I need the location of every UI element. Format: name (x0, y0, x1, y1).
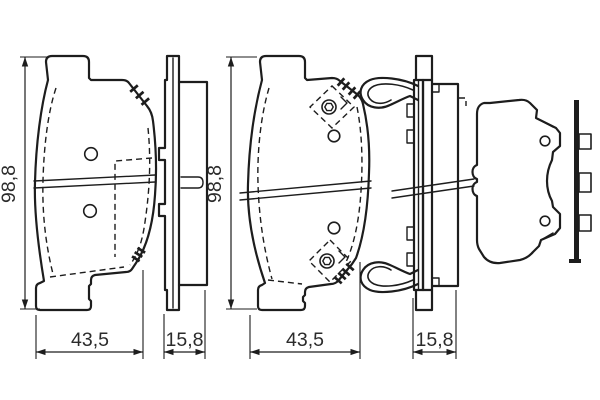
carrier-plate-tab-2 (579, 173, 591, 192)
pad1-rivet-hole-top (85, 148, 98, 161)
carrier-plate-foot (569, 259, 581, 263)
dim-arrow (134, 349, 144, 355)
pad1-break-line-1 (34, 175, 155, 181)
pad2-side-bottom-tab (416, 290, 432, 310)
pad1-contact-stripes-top (130, 85, 149, 105)
pad2-friction-hidden-line-right (346, 107, 362, 262)
pad2-break-line-1 (240, 181, 371, 193)
pad2-side-hidden-corner (459, 98, 466, 106)
dim-pad2-thickness-label: 15,8 (416, 329, 454, 351)
pad2-side-view (361, 56, 474, 310)
carrier-plate-tab-3 (579, 215, 591, 231)
pad3-hole-top (540, 136, 550, 146)
dim-pad2-thickness: 15,8 (413, 290, 456, 359)
dim-arrow (250, 349, 260, 355)
dim-arrow (22, 57, 28, 67)
pad1-friction-hidden-line-bottom (50, 267, 124, 277)
drawing-svg: 98,8 98,8 43,5 15,8 43,5 (0, 0, 600, 400)
pad1-friction-hidden-line-right (130, 128, 150, 265)
pad2-friction-hidden-line-left (258, 88, 272, 279)
dim-arrow (228, 57, 234, 67)
pad3-hole-bottom (540, 216, 550, 226)
dim-pad2-width-label: 43,5 (286, 329, 324, 351)
pad1-side-view (159, 56, 207, 310)
carrier-plate-tab-1 (579, 134, 591, 149)
dim-arrow (228, 300, 234, 310)
pad2-front-view (240, 56, 371, 310)
wear-indicator-clip-bottom (361, 262, 418, 292)
pad2-hole-bottom (328, 222, 340, 234)
dim-pad1-width-label: 43,5 (71, 329, 109, 351)
pad1-break-line-2 (34, 182, 155, 188)
wear-indicator-clip-top (361, 78, 418, 108)
dim-pad1-width: 43,5 (36, 270, 143, 359)
pad2-friction-hidden-line-bottom (268, 280, 302, 284)
pad1-front-view (34, 56, 156, 310)
pad3-tab-line-top (536, 118, 553, 127)
carrier-plate-edge-view (569, 100, 591, 263)
dim-pad1-height-label: 98,8 (0, 165, 20, 203)
dim-arrow (36, 349, 46, 355)
pad2-hole-top (328, 130, 340, 142)
dim-arrow (22, 300, 28, 310)
pad1-contact-stripes-bottom (132, 248, 145, 261)
dim-arrow (351, 349, 361, 355)
brake-pad-technical-drawing: 98,8 98,8 43,5 15,8 43,5 (0, 0, 600, 400)
pad2-bolt-detail-top (310, 86, 354, 128)
pad2-bolt-detail-bottom (309, 240, 351, 282)
pad3-rear-view (473, 100, 561, 263)
dim-pad1-thickness-label: 15,8 (166, 329, 204, 351)
pad1-side-strip (159, 56, 179, 310)
pad1-rivet-hole-bottom (84, 205, 97, 218)
dim-pad2-height-label: 98,8 (204, 165, 226, 203)
dim-pad1-thickness: 15,8 (164, 290, 205, 359)
pad2-side-top-tab (416, 56, 432, 80)
pad2-break-line-2 (240, 188, 371, 200)
pad1-side-spring-tab (181, 177, 203, 188)
